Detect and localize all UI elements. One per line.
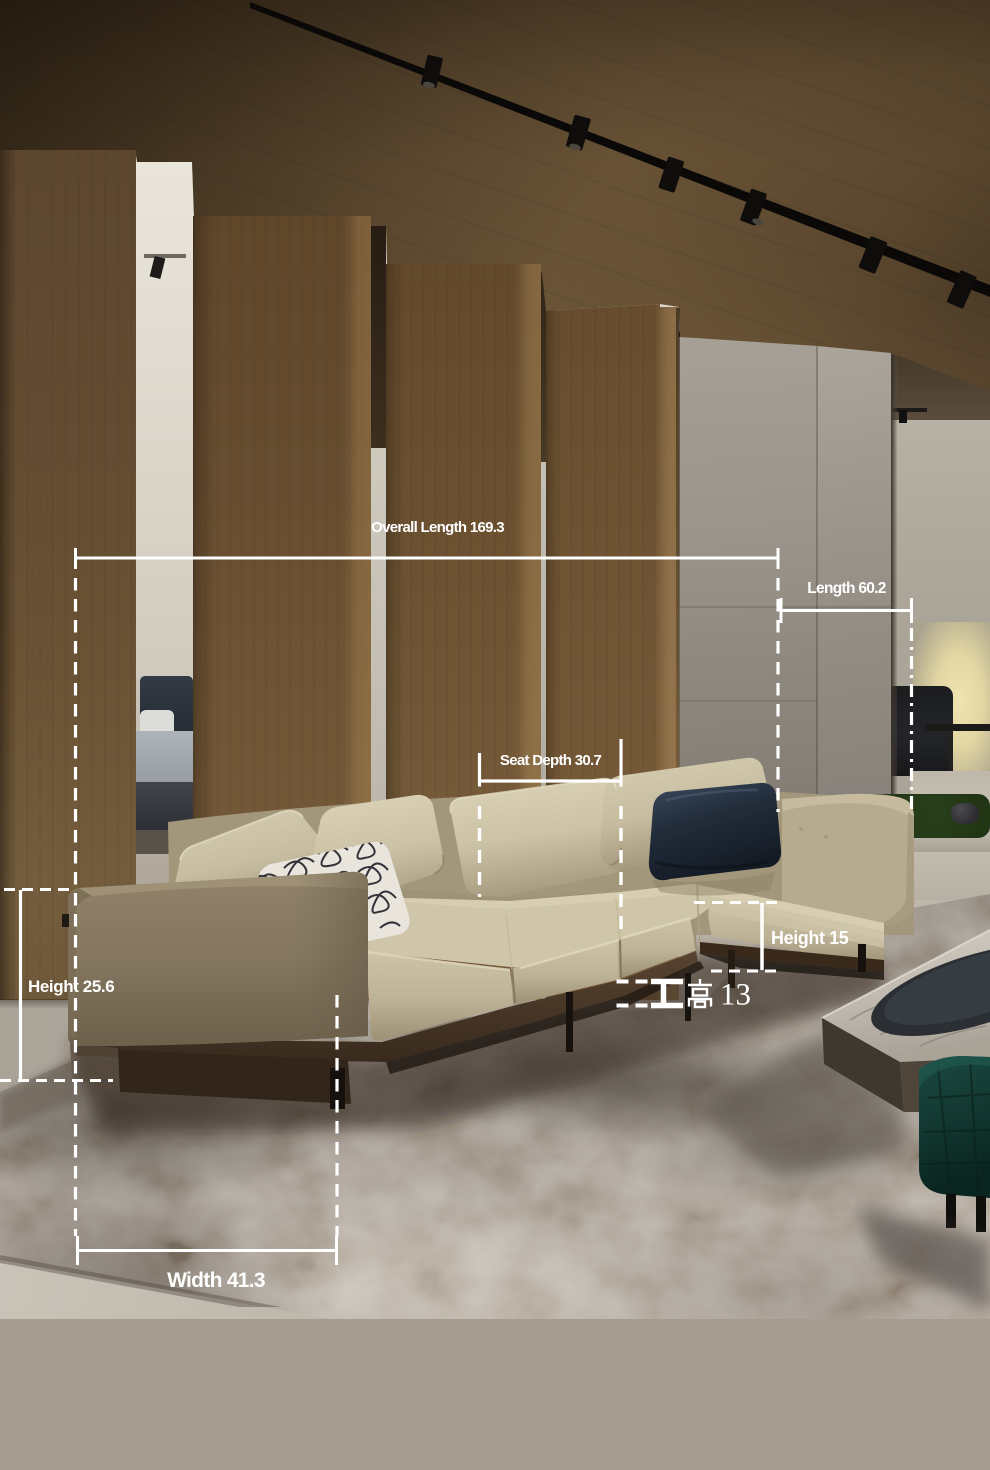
- svg-text:13: 13: [720, 977, 751, 1012]
